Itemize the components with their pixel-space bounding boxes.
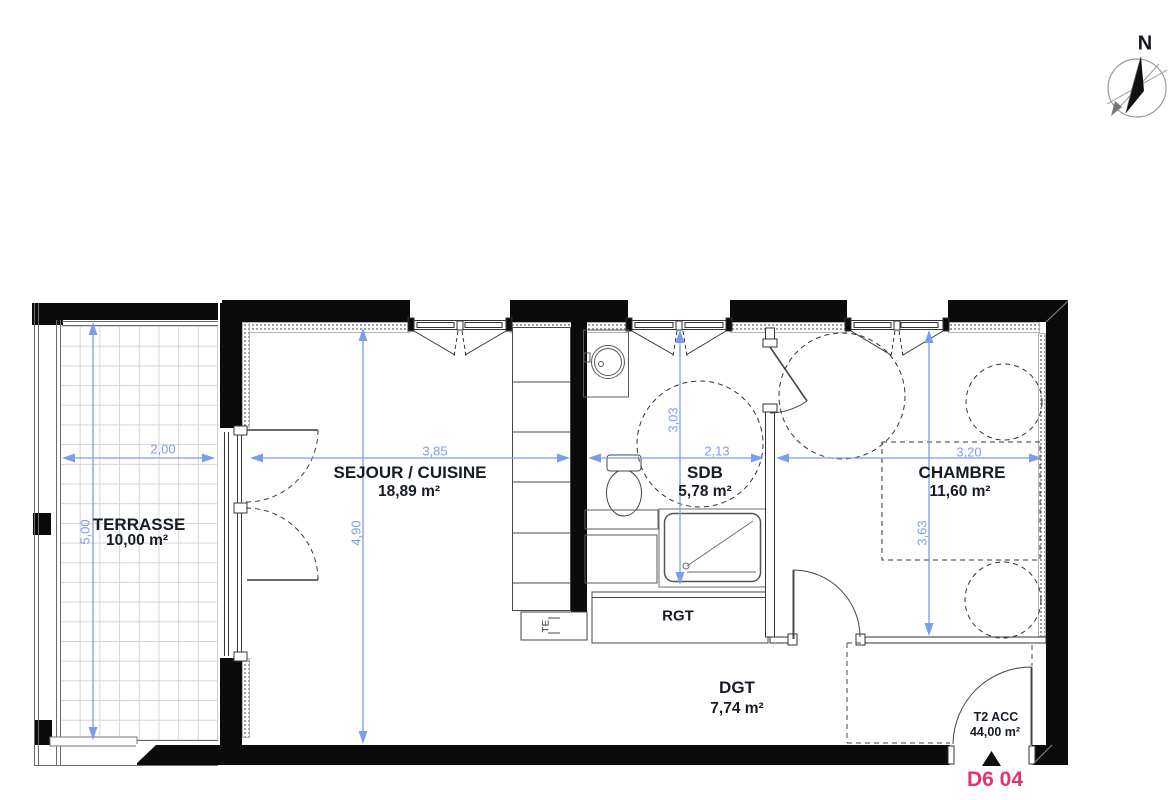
- electrical-panel-label: TE: [541, 619, 552, 632]
- insulation-strip: [242, 658, 250, 738]
- bay-window: [225, 426, 319, 661]
- bed-placement-dashed: [882, 442, 1040, 560]
- window-chambre: [845, 318, 949, 356]
- dim-sdb-width: 2,13: [704, 444, 729, 459]
- wall-railing-block: [35, 720, 52, 745]
- wall-right: [1046, 300, 1068, 765]
- turning-circle-chambre: [779, 333, 905, 459]
- entry-marker-icon: [982, 751, 1001, 766]
- room-label-sejour-cuisine: SEJOUR / CUISINE: [333, 463, 486, 483]
- wall-corner-block: [32, 303, 63, 325]
- compass-north-icon: [1107, 57, 1167, 117]
- room-label-rgt: RGT: [662, 607, 694, 624]
- dim-terrasse-width: 2,00: [150, 442, 175, 457]
- wall-railing-block: [33, 513, 51, 535]
- room-area-sejour-cuisine: 18,89 m²: [378, 483, 440, 501]
- dim-sdb-height: 3,03: [666, 407, 681, 432]
- dim-sejour-height: 4,90: [349, 520, 364, 545]
- bathroom-counter: [585, 510, 658, 583]
- kitchen-cabinets: [513, 328, 571, 611]
- insulation-strip: [242, 322, 250, 428]
- insulation-strip: [510, 322, 628, 333]
- wall-kitchen-sdb: [571, 322, 587, 612]
- room-area-terrasse: 10,00 m²: [106, 532, 168, 550]
- toilet: [607, 455, 642, 516]
- floor-plan: N TERRASSE 10,00 m² SEJOUR / CUISINE 18,…: [0, 0, 1170, 800]
- wall-top: [222, 300, 410, 322]
- wall-terrace-side-upper: [220, 303, 242, 428]
- room-area-dgt: 7,74 m²: [710, 700, 763, 718]
- wall-bottom: [137, 745, 950, 765]
- dim-sejour-width: 3,85: [422, 444, 447, 459]
- dim-terrasse-height: 5,00: [78, 519, 93, 544]
- insulation-strip: [1038, 333, 1046, 637]
- window-sdb: [626, 318, 732, 356]
- room-area-chambre: 11,60 m²: [929, 483, 990, 501]
- wall-terrace-side-lower: [220, 658, 242, 745]
- dim-chambre-height: 3,63: [915, 520, 930, 545]
- unit-area-label: 44,00 m²: [970, 725, 1020, 739]
- room-label-sdb: SDB: [687, 463, 723, 483]
- insulation-strip: [948, 322, 1040, 333]
- wall-top: [510, 300, 628, 322]
- plan-code-label: D6 04: [967, 768, 1023, 792]
- door-sdb-chambre: [770, 347, 807, 413]
- dim-chambre-width: 3,20: [956, 445, 981, 460]
- wall-top: [730, 300, 847, 322]
- clearance-circle-bottom: [965, 562, 1041, 638]
- insulation-strip: [222, 322, 410, 333]
- partition-walls: [763, 328, 1046, 764]
- unit-type-label: T2 ACC: [974, 710, 1019, 724]
- washbasin: [584, 330, 629, 397]
- room-label-dgt: DGT: [719, 678, 755, 698]
- insulation-strip: [730, 322, 847, 333]
- room-label-chambre: CHAMBRE: [919, 463, 1006, 483]
- room-area-sdb: 5,78 m²: [678, 483, 731, 501]
- wall-bottom: [1032, 745, 1068, 765]
- clearance-circle-top: [966, 364, 1042, 440]
- compass-label: N: [1138, 33, 1152, 56]
- shower: [659, 509, 766, 587]
- window-sejour: [408, 318, 512, 356]
- door-chambre: [794, 570, 861, 639]
- electrical-panel-box: [521, 612, 587, 640]
